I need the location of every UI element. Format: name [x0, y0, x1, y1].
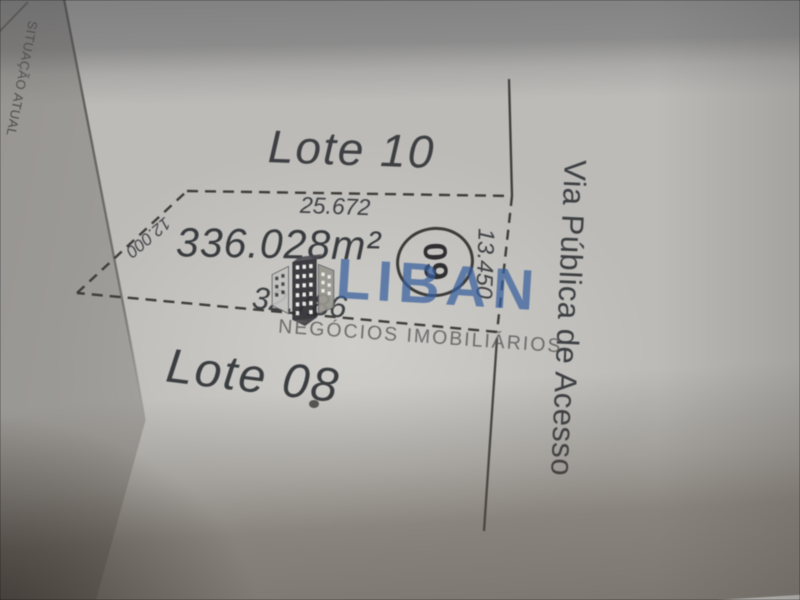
photo-corner-vignette — [0, 0, 800, 600]
survey-plat-photo: SITUAÇÃO ATUAL Lote 10 25.672 336.028m² … — [0, 0, 800, 600]
